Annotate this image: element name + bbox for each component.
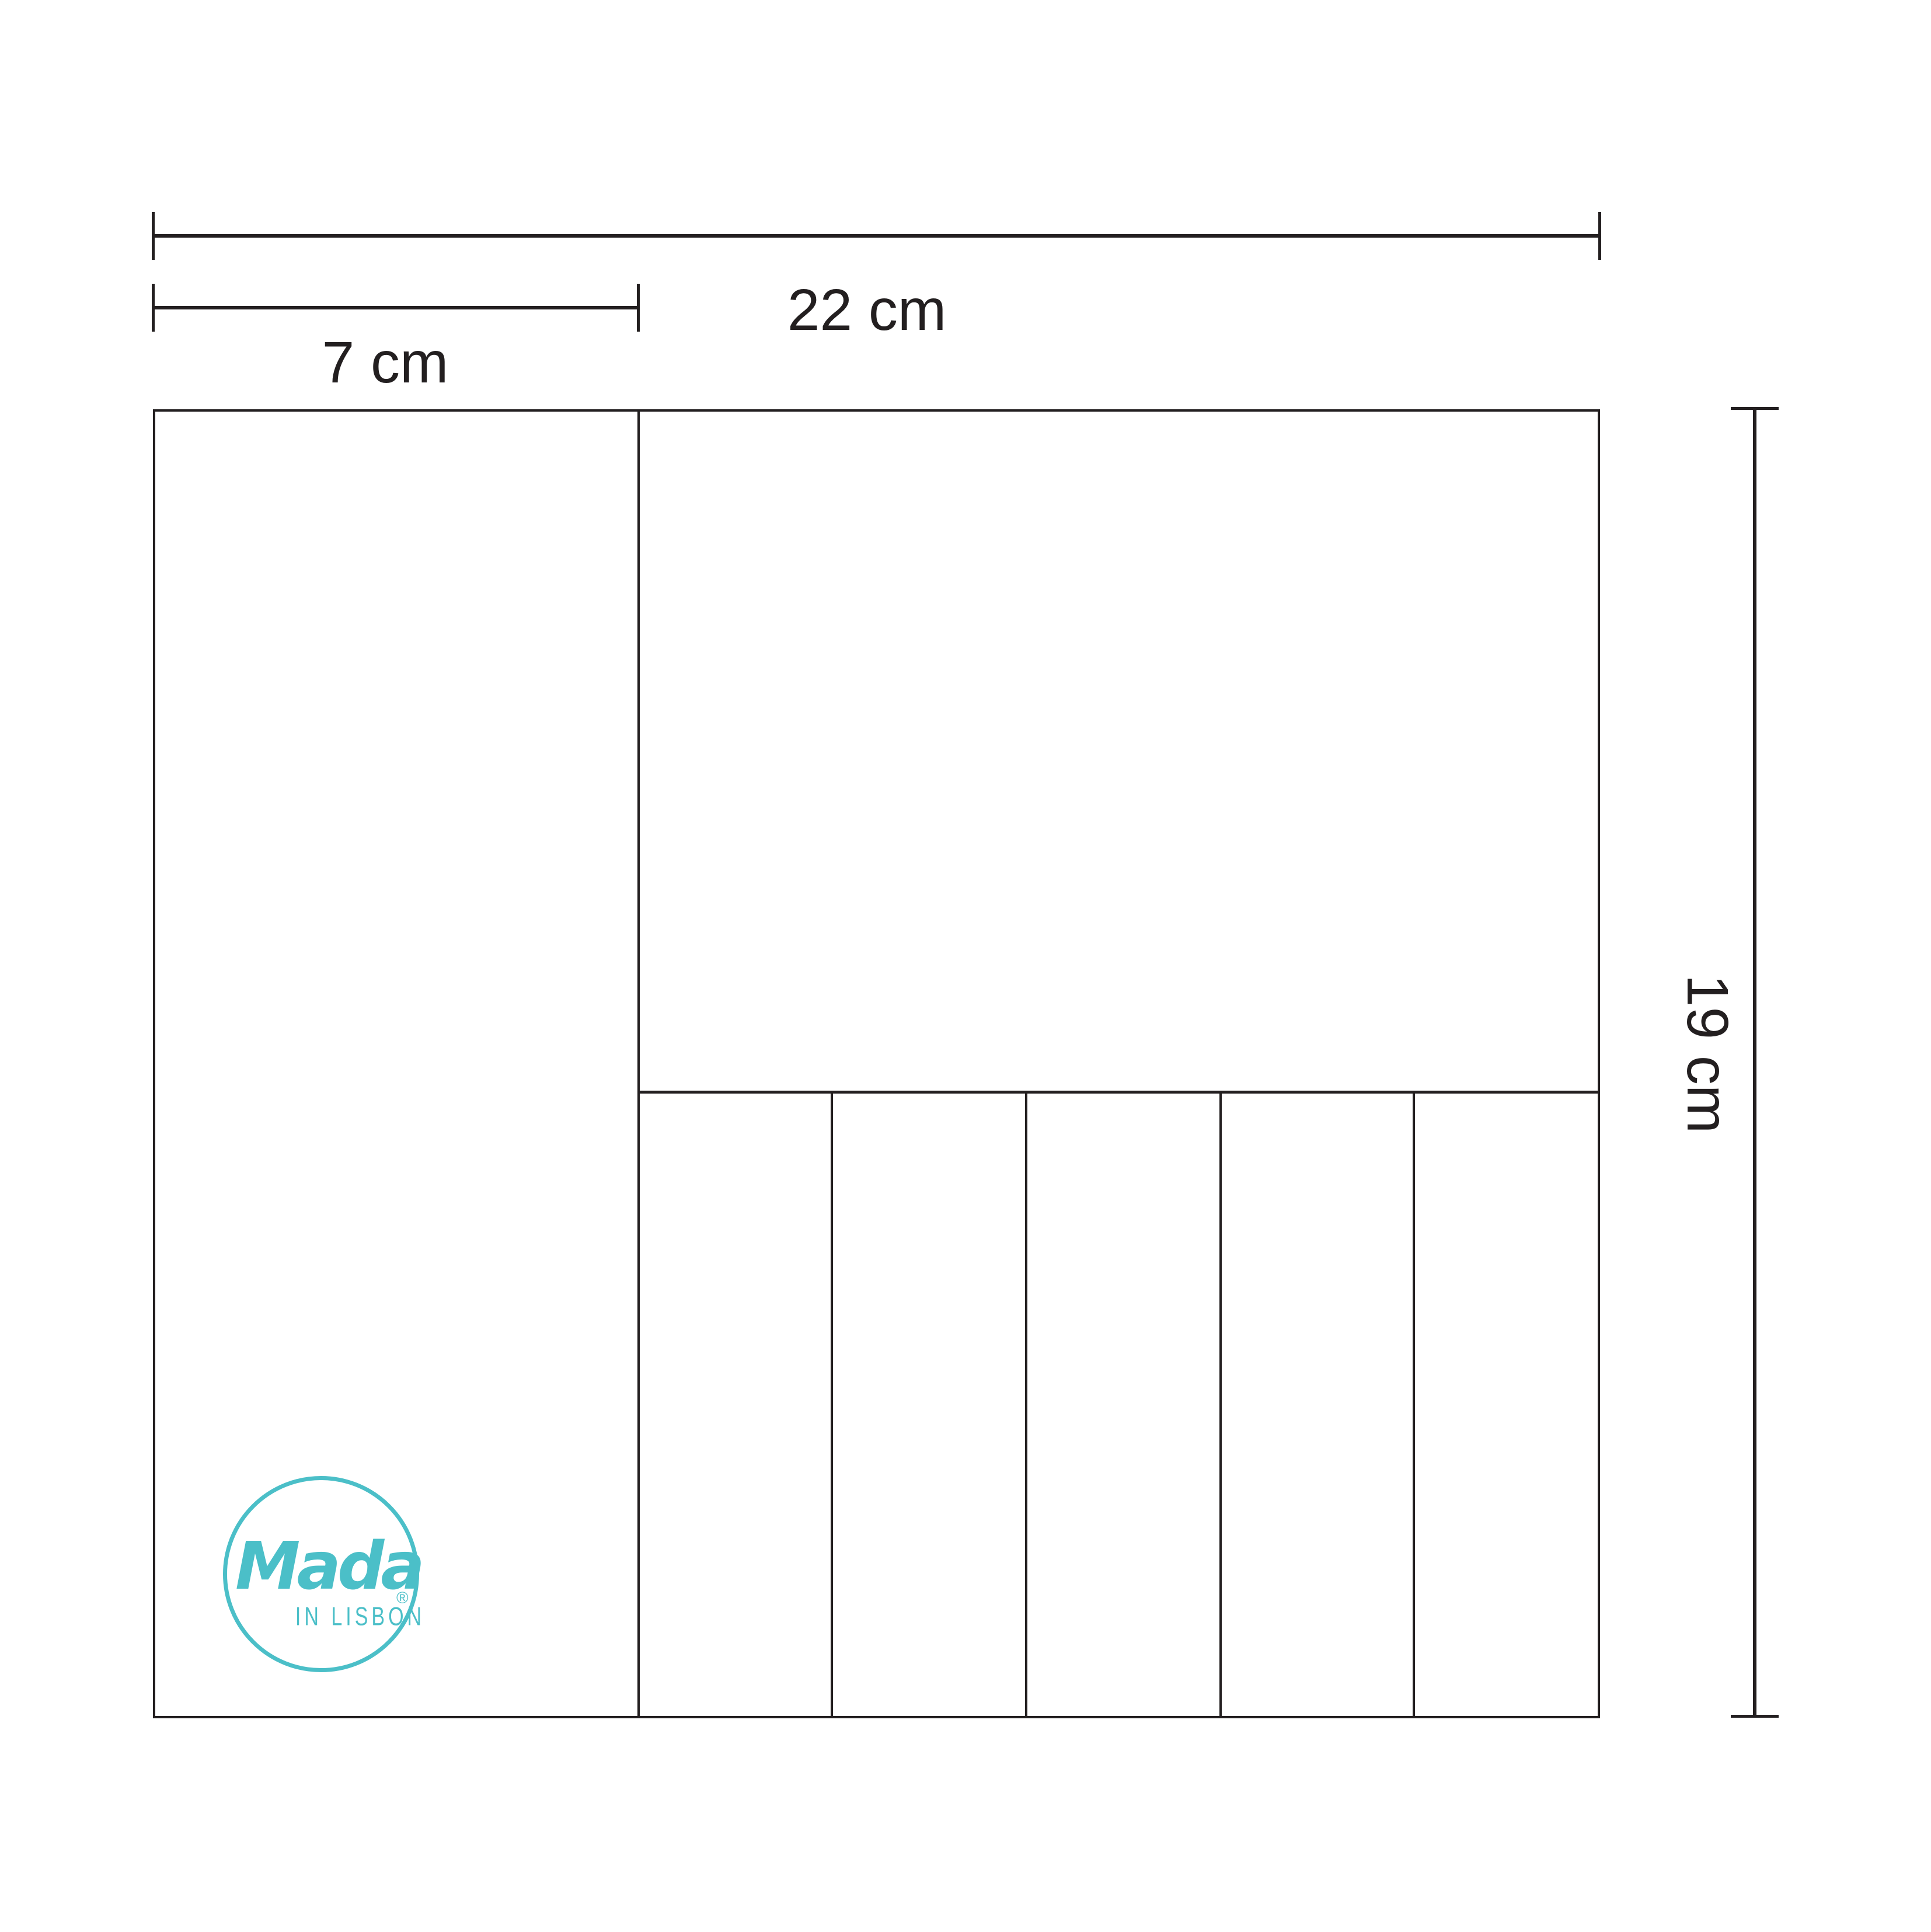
horizontal-divider	[639, 1091, 1600, 1094]
width-dimension-line	[153, 234, 1600, 238]
left-section-dimension-tick-right	[637, 284, 640, 332]
left-section-dimension-tick-left	[152, 284, 155, 332]
strip-divider-3	[1219, 1094, 1222, 1718]
height-dimension-label: 19 cm	[1678, 937, 1737, 1171]
dimension-diagram: 22 cm 7 cm 19 cm Mada ® IN LISBON	[0, 0, 1931, 1932]
logo-brand-text: Mada	[235, 1534, 399, 1599]
left-section-dimension-label: 7 cm	[269, 333, 502, 392]
strip-divider-1	[831, 1094, 833, 1718]
width-dimension-tick-right	[1598, 212, 1601, 260]
strip-divider-4	[1413, 1094, 1415, 1718]
height-dimension-tick-bottom	[1731, 1715, 1779, 1718]
left-section-dimension-line	[153, 306, 639, 309]
height-dimension-tick-top	[1731, 407, 1779, 410]
width-dimension-label: 22 cm	[750, 281, 984, 339]
strip-divider-2	[1025, 1094, 1027, 1718]
logo-subtitle-text: IN LISBON	[278, 1604, 442, 1630]
width-dimension-tick-left	[152, 212, 155, 260]
left-column-divider	[637, 409, 640, 1718]
mada-logo: Mada ® IN LISBON	[223, 1476, 419, 1672]
height-dimension-line	[1753, 408, 1756, 1716]
